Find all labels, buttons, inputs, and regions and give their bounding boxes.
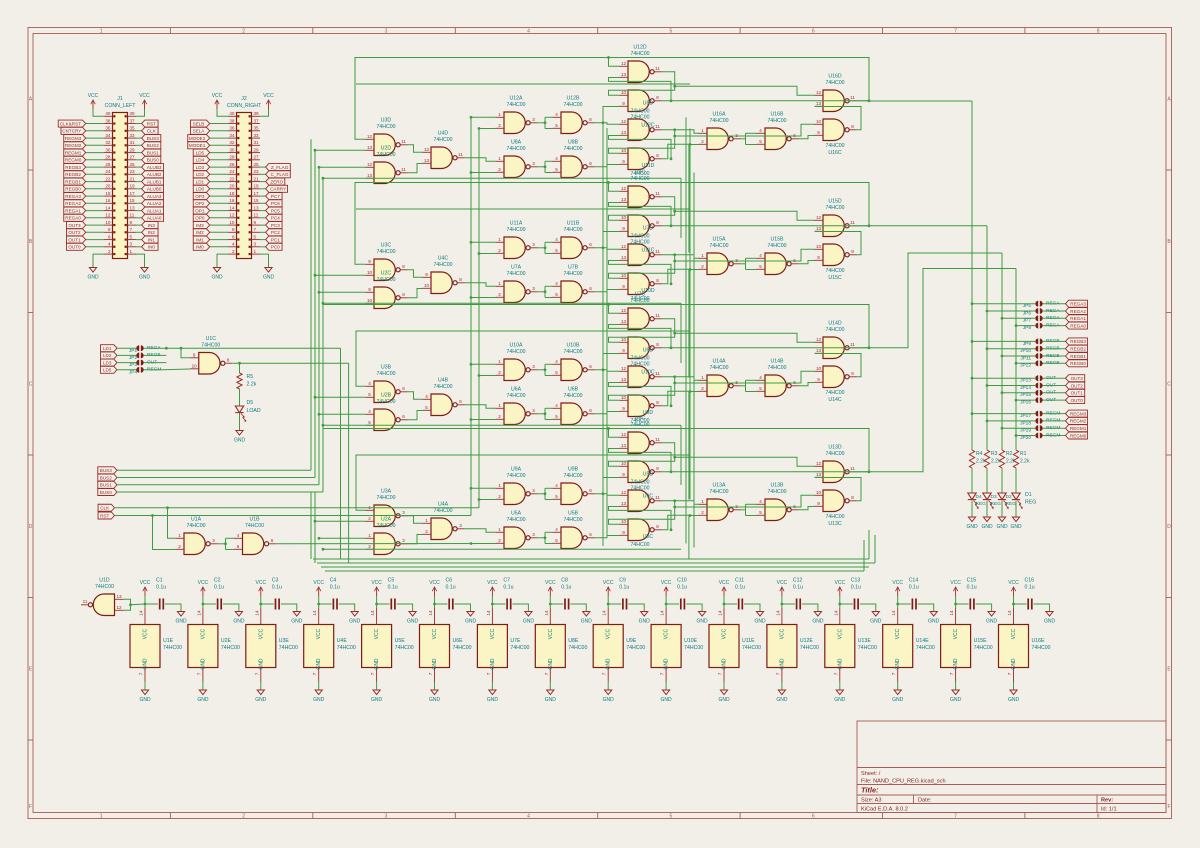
svg-text:7: 7 [602, 672, 607, 675]
svg-text:14: 14 [660, 610, 665, 616]
svg-text:U11B: U11B [567, 220, 580, 226]
svg-text:7: 7 [312, 672, 317, 675]
svg-text:C9: C9 [619, 578, 626, 584]
svg-text:U6B: U6B [568, 386, 579, 392]
svg-text:74HC00: 74HC00 [568, 645, 587, 651]
svg-text:VCC: VCC [316, 628, 322, 639]
svg-text:JP3: JP3 [129, 362, 138, 368]
svg-text:15: 15 [254, 198, 260, 203]
svg-text:U9B: U9B [568, 466, 579, 472]
svg-text:1: 1 [701, 128, 704, 133]
svg-text:9: 9 [817, 255, 820, 260]
svg-text:3: 3 [212, 538, 215, 543]
svg-text:C: C [29, 382, 33, 388]
svg-text:5: 5 [555, 414, 558, 419]
svg-text:REGB0: REGB0 [1070, 361, 1086, 366]
svg-text:9: 9 [622, 284, 625, 289]
svg-text:74HC00: 74HC00 [630, 176, 649, 182]
svg-text:1: 1 [498, 112, 501, 117]
svg-text:9: 9 [622, 101, 625, 106]
svg-text:1: 1 [498, 359, 501, 364]
svg-text:2: 2 [701, 264, 704, 269]
svg-text:11: 11 [655, 371, 660, 376]
svg-text:74HC00: 74HC00 [376, 249, 395, 255]
svg-text:74HC00: 74HC00 [279, 645, 298, 651]
svg-text:GND: GND [407, 619, 419, 625]
svg-text:16: 16 [105, 198, 111, 203]
svg-text:JP14: JP14 [1020, 385, 1031, 391]
svg-text:BUS1: BUS1 [100, 483, 112, 488]
svg-text:10: 10 [192, 363, 198, 368]
svg-text:5: 5 [555, 123, 558, 128]
svg-text:8: 8 [402, 292, 405, 297]
svg-text:2: 2 [498, 292, 501, 297]
svg-text:U4C: U4C [438, 255, 449, 261]
svg-text:U2A: U2A [381, 516, 392, 522]
svg-text:2: 2 [498, 167, 501, 172]
svg-text:14: 14 [718, 610, 723, 616]
svg-text:74HC00: 74HC00 [506, 517, 525, 523]
svg-text:10: 10 [424, 283, 430, 288]
svg-text:7: 7 [486, 672, 491, 675]
svg-text:U14A: U14A [713, 358, 727, 364]
svg-text:JP5: JP5 [1023, 303, 1032, 309]
svg-text:74HC00: 74HC00 [916, 645, 935, 651]
svg-text:1: 1 [701, 253, 704, 258]
svg-text:25: 25 [254, 162, 260, 167]
svg-text:U12D: U12D [633, 44, 647, 50]
svg-text:CNTCRY: CNTCRY [62, 129, 81, 134]
svg-text:GND: GND [1044, 619, 1056, 625]
svg-text:7: 7 [544, 672, 549, 675]
svg-text:35: 35 [254, 126, 260, 131]
svg-text:12: 12 [105, 213, 111, 218]
svg-text:U16A: U16A [713, 111, 727, 117]
svg-text:8: 8 [851, 495, 854, 500]
svg-text:74HC00: 74HC00 [376, 277, 395, 283]
svg-text:74HC00: 74HC00 [630, 422, 649, 428]
svg-text:13: 13 [621, 443, 627, 448]
svg-text:7: 7 [954, 29, 957, 35]
svg-text:11: 11 [458, 152, 463, 157]
svg-text:74HC00: 74HC00 [563, 517, 582, 523]
svg-text:U8C: U8C [635, 169, 646, 175]
svg-text:4: 4 [108, 242, 111, 247]
svg-text:74HC00: 74HC00 [376, 152, 395, 158]
svg-text:0.1u: 0.1u [1025, 585, 1035, 591]
svg-text:6: 6 [589, 364, 592, 369]
svg-text:VCC: VCC [143, 628, 149, 639]
svg-text:GND: GND [870, 619, 882, 625]
svg-text:Title:: Title: [861, 786, 879, 795]
svg-text:VCC: VCC [313, 580, 324, 586]
svg-text:3: 3 [532, 161, 535, 166]
svg-text:C1: C1 [156, 578, 163, 584]
svg-text:0.1u: 0.1u [214, 585, 224, 591]
svg-text:7: 7 [718, 672, 723, 675]
svg-text:11: 11 [850, 342, 855, 347]
svg-text:GND: GND [834, 697, 846, 703]
svg-text:12: 12 [816, 461, 822, 466]
svg-text:14: 14 [229, 205, 235, 210]
svg-text:C15: C15 [967, 578, 977, 584]
svg-text:12: 12 [116, 605, 122, 610]
svg-text:U1C: U1C [206, 336, 217, 342]
svg-text:REG: REG [1025, 500, 1036, 506]
svg-text:37: 37 [130, 118, 136, 123]
svg-text:2: 2 [701, 139, 704, 144]
svg-text:74HC00: 74HC00 [376, 124, 395, 130]
svg-text:19: 19 [254, 184, 260, 189]
svg-text:12: 12 [229, 213, 235, 218]
svg-text:U13C: U13C [828, 521, 842, 527]
svg-text:21: 21 [254, 176, 260, 181]
svg-text:VCC: VCC [1011, 628, 1017, 639]
svg-text:ALUA3: ALUA3 [147, 194, 162, 199]
svg-text:IN3: IN3 [148, 223, 156, 228]
svg-text:16: 16 [229, 198, 235, 203]
svg-text:11: 11 [850, 466, 855, 471]
svg-text:38: 38 [105, 118, 111, 123]
svg-text:11: 11 [655, 124, 660, 129]
svg-text:U1B: U1B [249, 516, 260, 522]
svg-text:VCC: VCC [212, 93, 223, 99]
svg-text:14: 14 [949, 610, 954, 616]
svg-text:U15C: U15C [828, 275, 842, 281]
svg-text:2: 2 [232, 249, 235, 254]
svg-text:1: 1 [130, 249, 133, 254]
svg-text:4: 4 [759, 128, 762, 133]
svg-text:OUT0: OUT0 [68, 245, 81, 250]
svg-text:18: 18 [229, 191, 235, 196]
svg-text:GND: GND [1008, 697, 1020, 703]
svg-text:1: 1 [425, 518, 428, 523]
svg-text:C_FLAG: C_FLAG [271, 172, 289, 177]
svg-text:6: 6 [589, 488, 592, 493]
svg-text:U2C: U2C [381, 270, 392, 276]
svg-text:U1D: U1D [99, 577, 110, 583]
svg-text:13: 13 [816, 348, 822, 353]
svg-text:1: 1 [701, 499, 704, 504]
svg-text:7: 7 [954, 814, 957, 820]
svg-text:74HC00: 74HC00 [563, 146, 582, 152]
svg-text:19: 19 [130, 184, 136, 189]
svg-text:GND: GND [722, 658, 728, 670]
svg-text:ALUB0: ALUB0 [147, 187, 162, 192]
svg-text:JP8: JP8 [1023, 325, 1032, 331]
svg-text:VCC: VCC [606, 628, 612, 639]
svg-text:CARRY: CARRY [270, 187, 286, 192]
svg-text:GND: GND [429, 697, 441, 703]
svg-text:74HC00: 74HC00 [825, 451, 844, 457]
svg-text:ALUB1: ALUB1 [147, 179, 162, 184]
svg-text:File: NAND_CPU_REG.kicad_sch: File: NAND_CPU_REG.kicad_sch [861, 779, 946, 785]
svg-text:31: 31 [254, 140, 260, 145]
svg-text:PC7: PC7 [271, 194, 280, 199]
svg-text:11: 11 [655, 313, 660, 318]
svg-text:VCC: VCC [837, 628, 843, 639]
svg-text:JP10: JP10 [1020, 348, 1031, 354]
svg-text:MODE2: MODE2 [189, 136, 206, 141]
svg-text:74HC00: 74HC00 [825, 268, 844, 274]
svg-text:38: 38 [229, 118, 235, 123]
svg-text:5: 5 [555, 370, 558, 375]
svg-text:BUS2: BUS2 [147, 143, 159, 148]
svg-text:8: 8 [851, 249, 854, 254]
svg-text:JP18: JP18 [1020, 420, 1031, 426]
svg-text:Id: 1/1: Id: 1/1 [1101, 807, 1117, 813]
svg-text:17: 17 [130, 191, 136, 196]
svg-text:U4A: U4A [438, 501, 449, 507]
svg-text:12: 12 [621, 432, 627, 437]
svg-text:C10: C10 [677, 578, 687, 584]
svg-text:GND: GND [291, 619, 303, 625]
svg-text:6: 6 [108, 234, 111, 239]
svg-text:D2: D2 [1006, 494, 1012, 500]
svg-text:9: 9 [622, 472, 625, 477]
svg-text:LOAD: LOAD [247, 408, 261, 414]
svg-text:10: 10 [229, 220, 235, 225]
svg-text:PC6: PC6 [271, 201, 280, 206]
svg-text:GND: GND [211, 275, 223, 281]
svg-text:12: 12 [621, 119, 627, 124]
svg-text:15: 15 [130, 198, 136, 203]
svg-text:REGB3: REGB3 [1070, 339, 1086, 344]
svg-text:GND: GND [465, 619, 477, 625]
svg-text:74HC00: 74HC00 [163, 645, 182, 651]
svg-text:U4B: U4B [438, 377, 449, 383]
svg-text:31: 31 [130, 140, 136, 145]
svg-text:GND: GND [371, 697, 383, 703]
svg-text:5: 5 [237, 544, 240, 549]
svg-text:JP4: JP4 [129, 369, 138, 375]
svg-text:U13A: U13A [713, 482, 727, 488]
svg-text:SELA: SELA [193, 129, 206, 134]
svg-text:12: 12 [621, 186, 627, 191]
svg-text:U10C: U10C [641, 370, 655, 376]
svg-text:U5A: U5A [511, 510, 522, 516]
svg-text:10: 10 [367, 298, 373, 303]
svg-text:GND: GND [966, 524, 978, 530]
svg-text:74HC00: 74HC00 [709, 243, 728, 249]
svg-text:D: D [1167, 524, 1171, 530]
svg-text:11: 11 [130, 213, 135, 218]
svg-text:0.1u: 0.1u [677, 585, 687, 591]
svg-text:VCC: VCC [835, 580, 846, 586]
svg-text:KiCad E.D.A. 8.0.2: KiCad E.D.A. 8.0.2 [861, 807, 908, 813]
svg-text:RST: RST [100, 513, 109, 518]
svg-text:14: 14 [775, 610, 780, 616]
svg-text:VCC: VCC [258, 628, 264, 639]
svg-text:U14C: U14C [828, 397, 842, 403]
svg-text:5: 5 [130, 234, 133, 239]
svg-text:1: 1 [368, 533, 371, 538]
svg-text:GND: GND [754, 619, 766, 625]
svg-text:3: 3 [532, 286, 535, 291]
svg-text:JP17: JP17 [1020, 413, 1031, 419]
svg-text:0.1u: 0.1u [967, 585, 977, 591]
svg-text:REGM2: REGM2 [1070, 419, 1087, 424]
svg-text:4: 4 [555, 281, 558, 286]
svg-text:9: 9 [622, 406, 625, 411]
svg-text:5: 5 [670, 814, 673, 820]
svg-text:REGM2: REGM2 [65, 143, 82, 148]
svg-text:REGM3: REGM3 [1070, 411, 1087, 416]
svg-text:8: 8 [232, 227, 235, 232]
svg-text:GND: GND [776, 697, 788, 703]
svg-text:74HC00: 74HC00 [506, 349, 525, 355]
svg-text:GND: GND [603, 697, 615, 703]
svg-text:VCC: VCC [953, 628, 959, 639]
svg-text:9: 9 [817, 130, 820, 135]
svg-text:74HC00: 74HC00 [709, 489, 728, 495]
svg-text:BUS0: BUS0 [100, 490, 112, 495]
svg-text:0.1u: 0.1u [446, 585, 456, 591]
svg-text:23: 23 [254, 169, 260, 174]
svg-text:74HC00: 74HC00 [433, 384, 452, 390]
svg-text:2: 2 [498, 538, 501, 543]
svg-text:Sheet: /: Sheet: / [861, 771, 881, 777]
svg-text:JP7: JP7 [1023, 318, 1032, 324]
svg-text:U5D: U5D [643, 472, 654, 478]
svg-text:22: 22 [229, 176, 235, 181]
svg-text:74HC00: 74HC00 [563, 271, 582, 277]
svg-text:U6E: U6E [453, 638, 464, 644]
svg-text:13: 13 [424, 158, 430, 163]
svg-text:Z_FLAG: Z_FLAG [271, 165, 289, 170]
svg-text:REGB1: REGB1 [1070, 354, 1086, 359]
svg-text:GND: GND [928, 619, 940, 625]
svg-text:U9C: U9C [643, 494, 654, 500]
svg-text:12: 12 [621, 308, 627, 313]
svg-text:8: 8 [227, 358, 230, 363]
svg-text:0.1u: 0.1u [272, 585, 282, 591]
svg-text:GND: GND [197, 697, 209, 703]
svg-text:D5: D5 [247, 400, 254, 406]
svg-text:C12: C12 [793, 578, 803, 584]
svg-text:11: 11 [401, 139, 406, 144]
svg-text:GND: GND [1011, 658, 1017, 670]
svg-text:74HC00: 74HC00 [506, 146, 525, 152]
svg-text:BUS2: BUS2 [100, 475, 112, 480]
svg-text:7: 7 [139, 672, 144, 675]
svg-text:U7B: U7B [568, 264, 579, 270]
svg-text:74HC00: 74HC00 [186, 523, 205, 529]
svg-text:U1A: U1A [191, 516, 202, 522]
svg-text:VCC: VCC [950, 580, 961, 586]
svg-text:74HC00: 74HC00 [221, 645, 240, 651]
svg-text:U3D: U3D [381, 117, 392, 123]
svg-text:10: 10 [816, 490, 822, 495]
svg-text:74HC00: 74HC00 [563, 102, 582, 108]
svg-text:74HC00: 74HC00 [630, 362, 649, 368]
svg-text:74HC00: 74HC00 [395, 645, 414, 651]
svg-text:REGA0: REGA0 [65, 216, 81, 221]
svg-text:74HC00: 74HC00 [433, 262, 452, 268]
svg-text:12: 12 [424, 147, 430, 152]
svg-text:7: 7 [1007, 672, 1012, 675]
svg-text:74HC00: 74HC00 [1032, 645, 1051, 651]
svg-text:12: 12 [367, 134, 373, 139]
svg-text:13: 13 [621, 377, 627, 382]
svg-text:U8A: U8A [511, 139, 522, 145]
svg-text:U7C: U7C [635, 291, 646, 297]
svg-text:5: 5 [254, 234, 257, 239]
svg-text:32: 32 [105, 140, 111, 145]
svg-text:REG: REG [991, 501, 1002, 507]
svg-text:U7A: U7A [511, 264, 522, 270]
svg-text:13: 13 [816, 101, 822, 106]
svg-text:OP2: OP2 [195, 201, 205, 206]
svg-text:VCC: VCC [490, 628, 496, 639]
svg-text:9: 9 [368, 259, 371, 264]
svg-text:U9A: U9A [511, 466, 522, 472]
svg-text:VCC: VCC [139, 93, 150, 99]
svg-text:74HC00: 74HC00 [742, 645, 761, 651]
svg-text:JP11: JP11 [1020, 355, 1031, 361]
svg-text:U11C: U11C [642, 248, 655, 254]
svg-text:1: 1 [498, 281, 501, 286]
svg-text:13: 13 [367, 145, 373, 150]
svg-text:C14: C14 [909, 578, 919, 584]
svg-text:U15B: U15B [771, 236, 785, 242]
svg-text:OUT1: OUT1 [68, 237, 81, 242]
svg-text:4: 4 [555, 527, 558, 532]
svg-text:LD5: LD5 [196, 150, 205, 155]
svg-text:U9E: U9E [626, 638, 637, 644]
svg-text:12: 12 [621, 61, 627, 66]
svg-text:D4: D4 [976, 494, 982, 500]
svg-text:U11A: U11A [510, 220, 523, 226]
svg-text:F: F [1167, 804, 1170, 810]
svg-text:U3C: U3C [381, 242, 392, 248]
svg-text:10: 10 [367, 270, 373, 275]
svg-text:0.1u: 0.1u [619, 585, 629, 591]
svg-text:C4: C4 [330, 578, 337, 584]
svg-text:74HC00: 74HC00 [337, 645, 356, 651]
svg-text:5: 5 [670, 29, 673, 35]
svg-text:R4: R4 [976, 451, 983, 457]
svg-text:JP9: JP9 [1023, 341, 1032, 347]
svg-text:74HC00: 74HC00 [825, 327, 844, 333]
svg-text:GND: GND [895, 658, 901, 670]
svg-text:7: 7 [949, 672, 954, 675]
svg-text:REGA2: REGA2 [1070, 309, 1086, 314]
svg-text:JP19: JP19 [1020, 428, 1031, 434]
svg-text:74HC00: 74HC00 [825, 143, 844, 149]
svg-text:74HC00: 74HC00 [825, 80, 844, 86]
svg-text:Size: A3: Size: A3 [861, 798, 882, 804]
svg-text:REGM0: REGM0 [65, 158, 82, 163]
svg-text:VCC: VCC [256, 580, 267, 586]
svg-text:39: 39 [254, 111, 260, 116]
svg-text:U15E: U15E [974, 638, 988, 644]
svg-text:GND: GND [779, 658, 785, 670]
svg-text:3: 3 [532, 532, 535, 537]
svg-text:2: 2 [498, 414, 501, 419]
svg-text:6: 6 [589, 286, 592, 291]
svg-text:GND: GND [490, 658, 496, 670]
svg-text:1: 1 [498, 483, 501, 488]
svg-text:74HC00: 74HC00 [630, 298, 649, 304]
svg-text:74HC00: 74HC00 [453, 645, 472, 651]
svg-text:74HC00: 74HC00 [767, 489, 786, 495]
svg-text:U3B: U3B [381, 364, 392, 370]
svg-text:U3A: U3A [381, 488, 392, 494]
svg-text:74HC00: 74HC00 [506, 393, 525, 399]
svg-text:6: 6 [232, 234, 235, 239]
svg-text:GND: GND [313, 697, 325, 703]
